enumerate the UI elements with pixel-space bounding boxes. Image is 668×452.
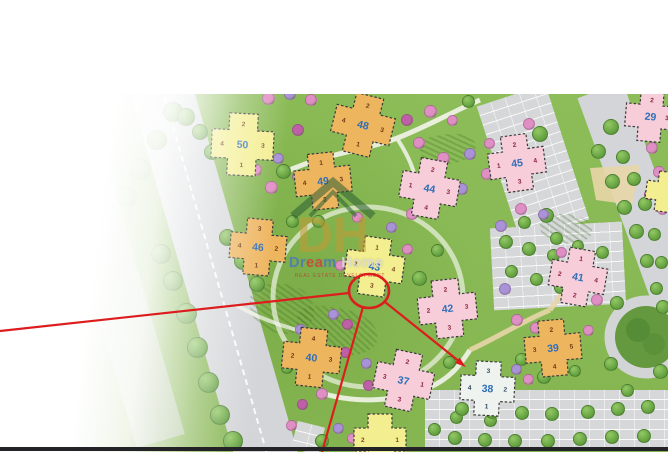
red-annotation-overlay <box>0 94 668 452</box>
master-plan-image: 2314501324492314483214462341442431452329… <box>0 94 668 452</box>
callout-line-1 <box>0 293 349 331</box>
site-plan-screenshot: 2314501324492314483214462341442431452329… <box>0 0 668 452</box>
callout-line-3 <box>385 302 460 362</box>
highlight-circle-building-43 <box>349 274 389 308</box>
callout-line-2 <box>322 307 363 452</box>
bottom-border-bar <box>0 447 668 451</box>
